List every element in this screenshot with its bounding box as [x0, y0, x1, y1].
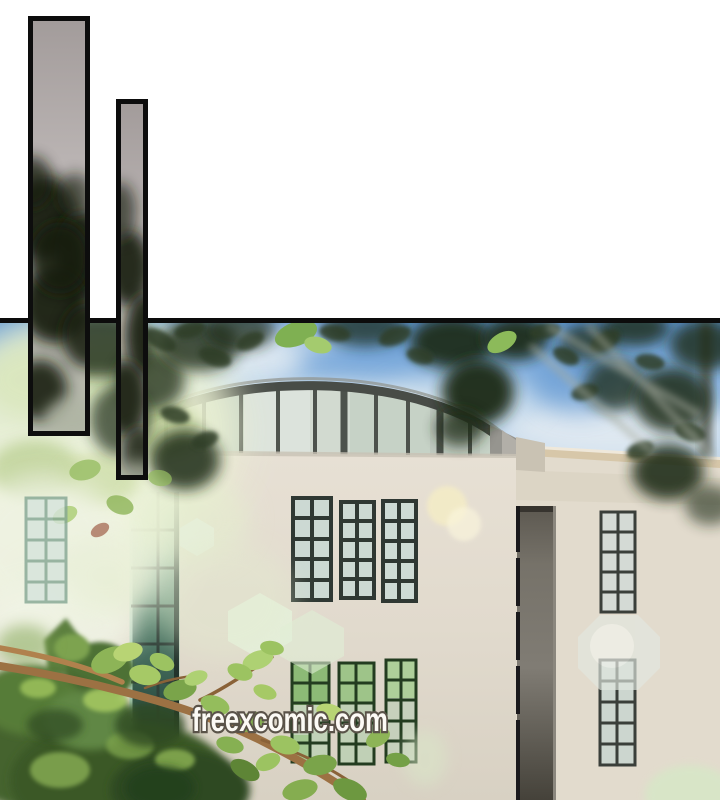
- svg-text:freexcomic.com: freexcomic.com: [192, 702, 388, 739]
